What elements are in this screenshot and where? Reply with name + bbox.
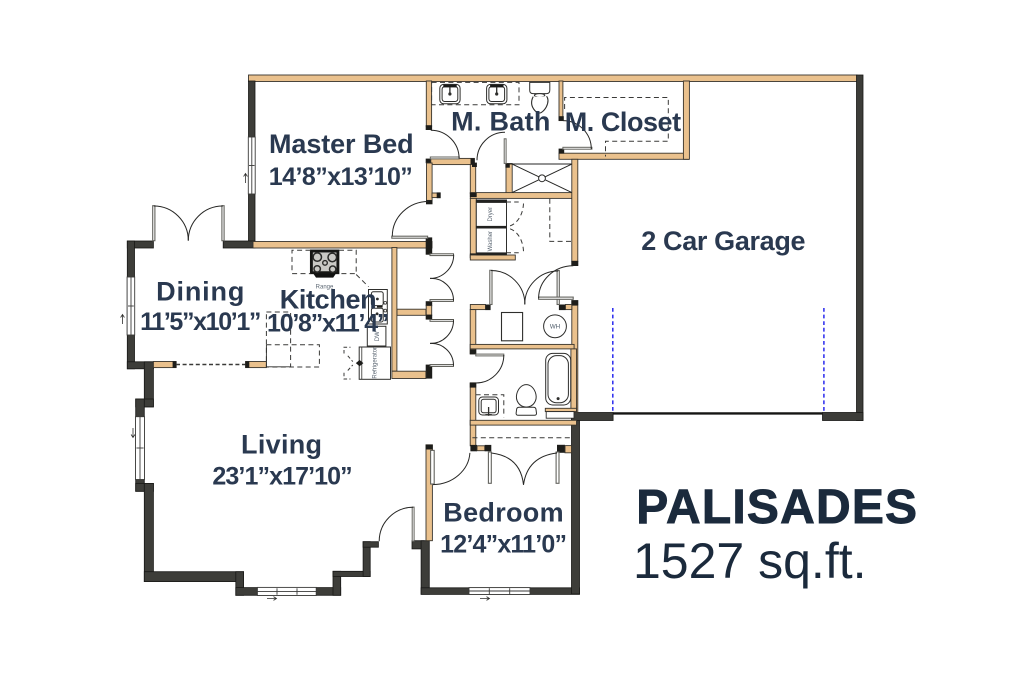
svg-text:23’1”x17’10”: 23’1”x17’10” bbox=[212, 462, 351, 490]
svg-text:12’4”x11’0”: 12’4”x11’0” bbox=[440, 530, 566, 558]
svg-text:Dryer: Dryer bbox=[488, 207, 494, 222]
svg-text:11’5”x10’1”: 11’5”x10’1” bbox=[140, 308, 260, 336]
svg-text:M. Bath: M. Bath bbox=[451, 107, 551, 137]
svg-text:PALISADES: PALISADES bbox=[636, 481, 918, 534]
svg-text:M. Closet: M. Closet bbox=[565, 107, 681, 137]
svg-text:WH: WH bbox=[550, 324, 560, 331]
svg-text:Dining: Dining bbox=[156, 276, 245, 306]
svg-text:2 Car Garage: 2 Car Garage bbox=[641, 226, 805, 256]
svg-text:14’8”x13’10”: 14’8”x13’10” bbox=[269, 163, 413, 191]
svg-text:Bedroom: Bedroom bbox=[443, 497, 564, 527]
svg-text:10’8”x11’4”: 10’8”x11’4” bbox=[267, 309, 388, 337]
svg-text:Washer: Washer bbox=[488, 231, 494, 251]
svg-text:Master Bed: Master Bed bbox=[269, 129, 414, 159]
svg-text:1527 sq.ft.: 1527 sq.ft. bbox=[633, 533, 867, 589]
svg-text:Refrigerator: Refrigerator bbox=[373, 347, 379, 379]
svg-text:Living: Living bbox=[241, 430, 322, 460]
